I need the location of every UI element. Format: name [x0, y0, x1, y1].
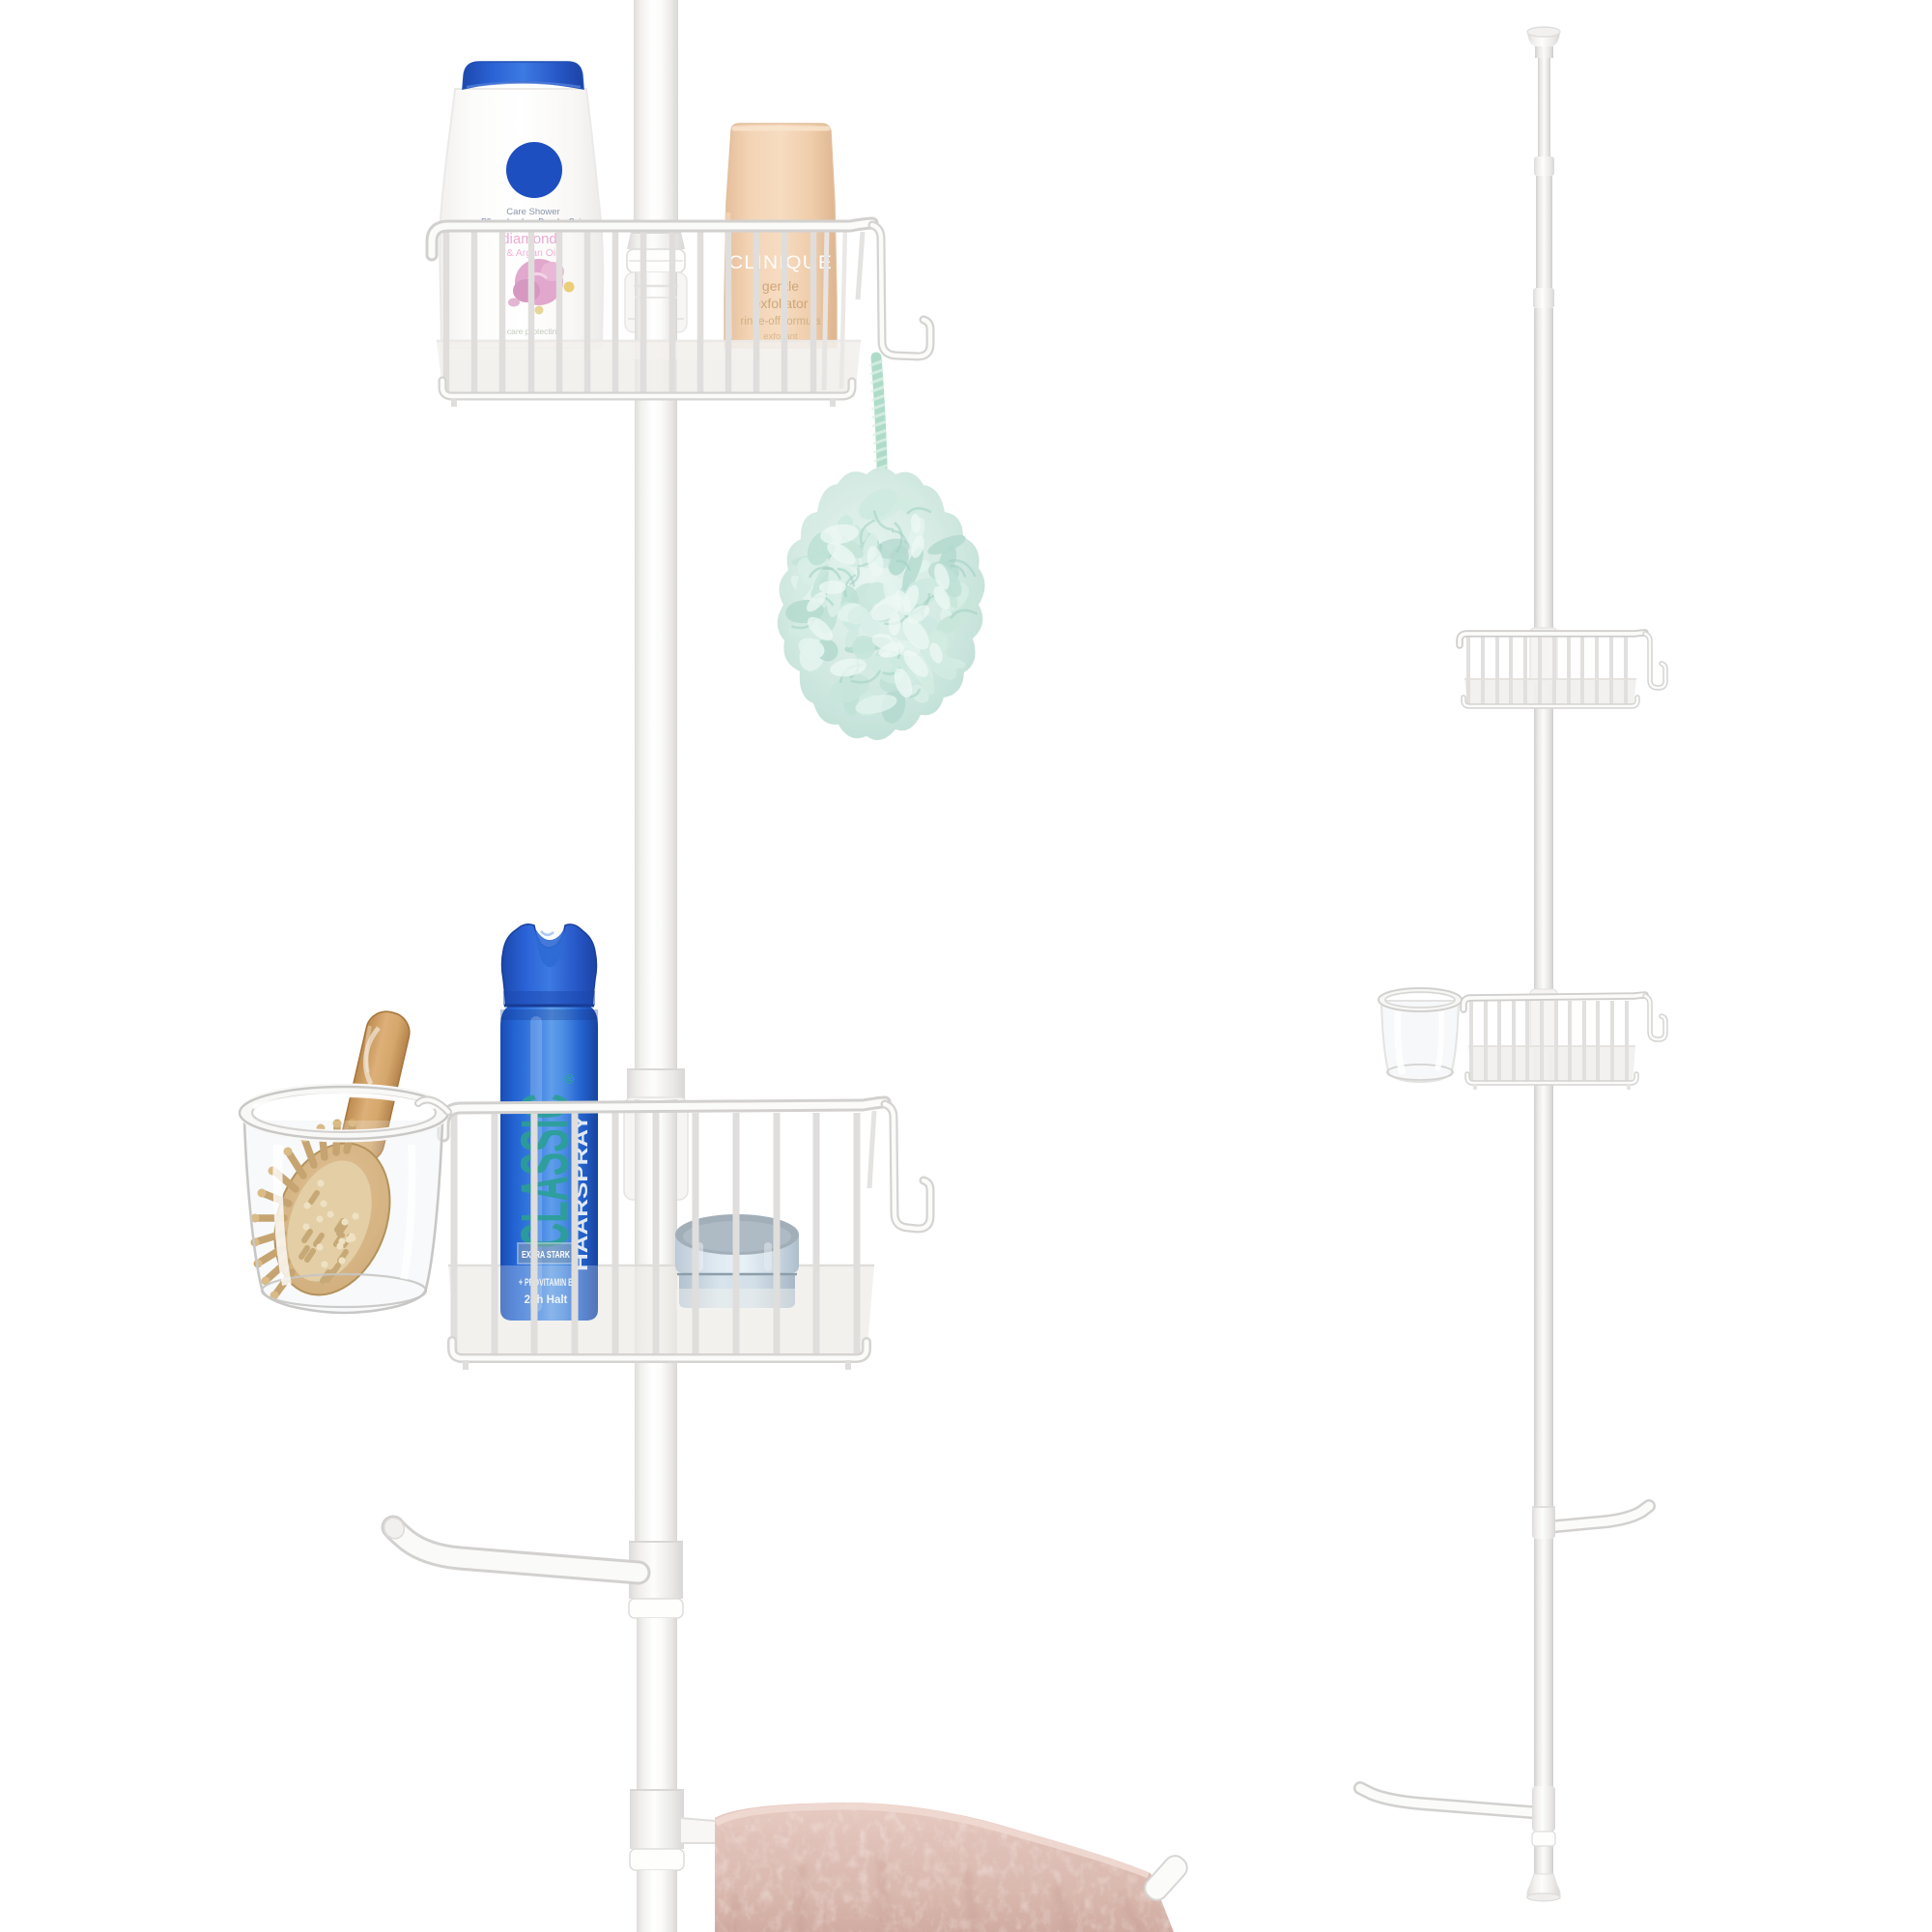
svg-text:CLINIQUE: CLINIQUE	[728, 253, 833, 273]
svg-text:EXTRA STARK: EXTRA STARK	[522, 1249, 570, 1261]
svg-text:exfoliator: exfoliator	[753, 296, 809, 311]
svg-text:®: ®	[561, 1073, 577, 1084]
svg-text:gentle: gentle	[762, 278, 799, 294]
svg-text:rinse-off formula: rinse-off formula	[741, 316, 821, 327]
